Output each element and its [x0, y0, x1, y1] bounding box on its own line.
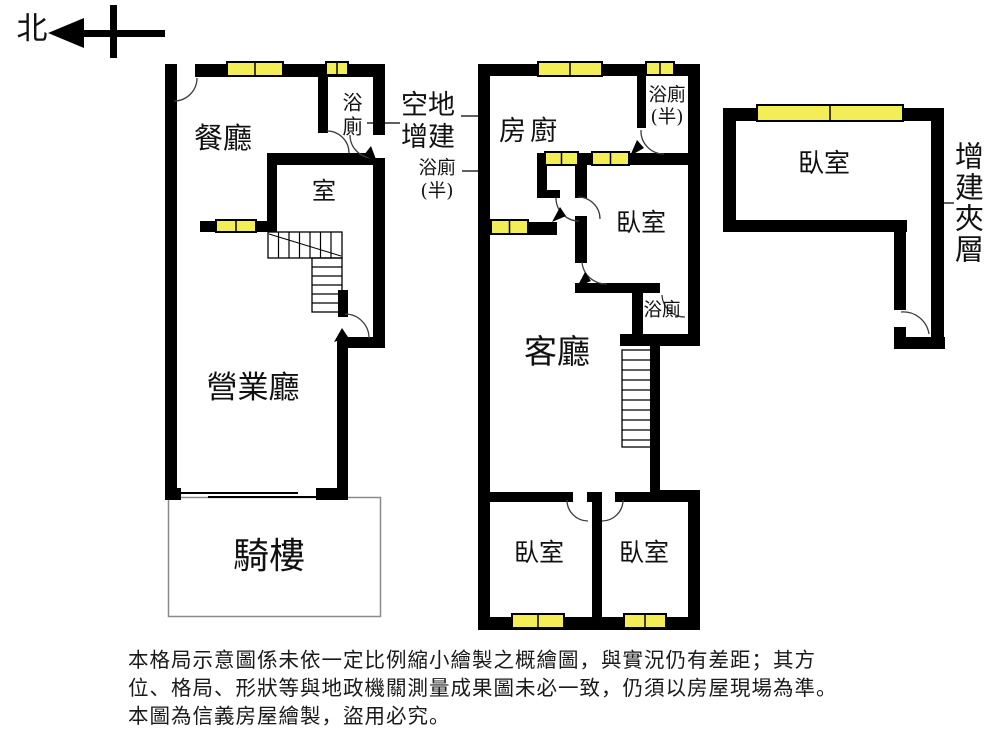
wall — [931, 108, 944, 349]
label-room: 室 — [306, 178, 342, 206]
label-bedroom-mezzanine: 臥室 — [791, 150, 857, 180]
wall — [894, 232, 906, 310]
label-vacant-addition: 空地 增建 — [396, 90, 460, 154]
wall — [110, 5, 117, 58]
label-bathroom-ground: 浴廁 — [339, 90, 362, 142]
label-business-hall: 營業廳 — [195, 371, 311, 407]
wall — [318, 77, 328, 133]
label-bedroom-bottom-left: 臥室 — [506, 539, 572, 568]
north-label: 北 — [14, 12, 50, 48]
wall — [267, 165, 277, 232]
door-arc — [567, 500, 588, 521]
wall — [723, 220, 907, 232]
disclaimer-line-2: 位、格局、形狀等與地政機關測量成果圖未必一致，仍須以房屋現場為準。 — [128, 674, 900, 702]
wall — [316, 488, 348, 500]
door-arc — [602, 500, 623, 521]
door-arc — [174, 78, 197, 101]
wall — [373, 64, 385, 135]
wall — [165, 64, 177, 500]
wall — [723, 108, 736, 232]
north-arrow-head — [48, 18, 84, 48]
wall — [478, 492, 573, 502]
label-arcade: 騎樓 — [226, 536, 312, 577]
label-dining-room: 餐廳 — [184, 122, 262, 155]
wall — [688, 490, 700, 630]
label-mezzanine: 增建夾層 — [950, 136, 983, 270]
label-bedroom-top: 臥室 — [609, 209, 673, 238]
wall — [373, 158, 385, 348]
door-swing-arrow — [552, 207, 566, 222]
disclaimer-line-3: 本圖為信義房屋繪製，盜用必究。 — [128, 702, 900, 730]
wall — [537, 190, 560, 198]
wall — [195, 64, 383, 77]
label-kitchen: 廚房 — [494, 97, 556, 173]
wall — [592, 500, 602, 625]
wall — [267, 153, 373, 165]
wall — [165, 488, 181, 500]
label-bathroom-upper: 浴廁 — [637, 300, 687, 321]
door-arc — [345, 314, 369, 338]
wall — [575, 165, 587, 198]
label-half-bathroom: 浴廁 (半) — [641, 85, 693, 129]
floorplan-canvas: 北 餐廳 浴廁 室 營業廳 騎樓 空地 增建 浴廁 (半) 廚房 浴廁 (半) … — [0, 0, 994, 745]
wall — [337, 348, 348, 500]
label-living-room: 客廳 — [516, 333, 598, 371]
wall — [615, 492, 700, 502]
wall — [337, 337, 385, 348]
door-arc — [641, 130, 664, 154]
stair-outline — [622, 350, 653, 447]
wall — [575, 216, 587, 263]
disclaimer-text: 本格局示意圖係未依一定比例縮小繪製之概繪圖，與實況仍有差距；其方 位、格局、形狀… — [128, 646, 900, 730]
disclaimer-line-1: 本格局示意圖係未依一定比例縮小繪製之概繪圖，與實況仍有差距；其方 — [128, 646, 900, 674]
wall — [478, 64, 490, 630]
label-half-bathroom-note: 浴廁 (半) — [410, 157, 464, 203]
label-bedroom-bottom-right: 臥室 — [612, 539, 676, 568]
door-arc — [578, 197, 600, 219]
stair-diagonal — [269, 234, 341, 256]
wall — [575, 283, 660, 293]
